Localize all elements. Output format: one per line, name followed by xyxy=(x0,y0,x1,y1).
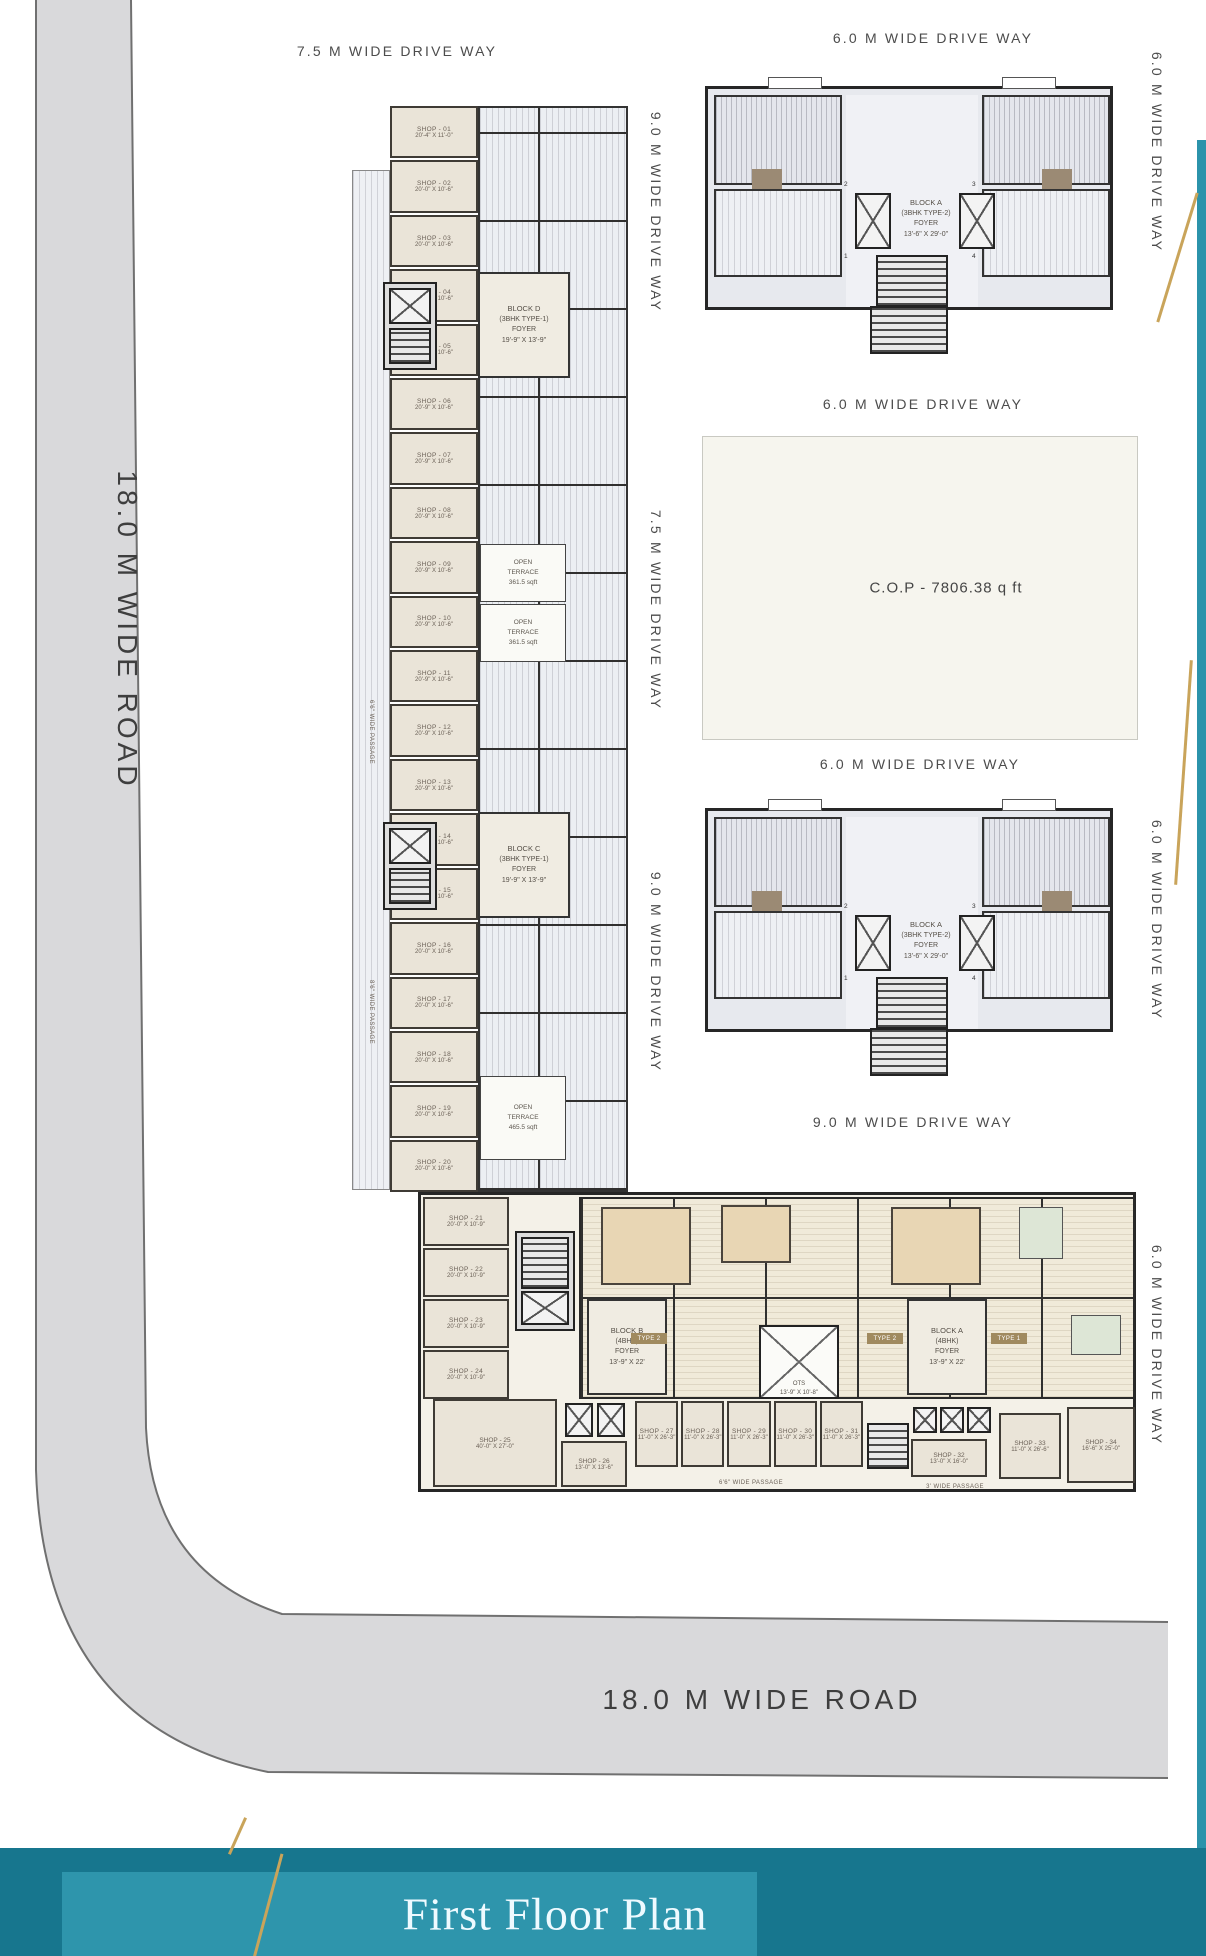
passage-label-left-2: 8'6" WIDE PASSAGE xyxy=(368,980,374,1044)
lift-icon xyxy=(913,1407,937,1433)
shop-size: 11'-0" X 26'-3" xyxy=(823,1435,860,1441)
shop-number: SHOP - 23 xyxy=(449,1317,483,1324)
open-terrace-3: OPENTERRACE465.5 sqft xyxy=(480,1076,566,1160)
toilet-room xyxy=(752,169,782,189)
shop-size: 11'-0" X 26'-3" xyxy=(684,1435,721,1441)
shop-size: 20'-9" X 10'-6" xyxy=(415,514,453,520)
lift-icon xyxy=(855,193,891,249)
block-a1-label: BLOCK A (3BHK TYPE-2) FOYER 13'-6" X 29'… xyxy=(894,181,958,257)
shop-number: SHOP - 12 xyxy=(417,724,451,731)
block-a-low-label: BLOCK A (4BHK) FOYER 13'-9" X 22' xyxy=(907,1299,987,1395)
block-d-name: BLOCK D xyxy=(480,304,568,313)
left-road-label: 18.0 M WIDE ROAD xyxy=(111,470,143,789)
stairs-icon xyxy=(876,255,948,307)
shop-size: 20'-9" X 10'-6" xyxy=(415,459,453,465)
driveway-label-inner-top: 9.0 M WIDE DRIVE WAY xyxy=(648,112,664,312)
shop-size: 20'-0" X 10'-9" xyxy=(447,1222,485,1228)
shop-unit: SHOP - 30 11'-0" X 26'-3" xyxy=(774,1401,817,1467)
shop-size: 20'-9" X 10'-6" xyxy=(415,731,453,737)
toilet-room xyxy=(752,891,782,911)
shop-number: SHOP - 24 xyxy=(449,1368,483,1375)
driveway-label-inner-mid: 7.5 M WIDE DRIVE WAY xyxy=(648,510,664,710)
shop-unit: SHOP - 18 20'-0" X 10'-6" xyxy=(390,1031,478,1083)
shop-number: SHOP - 10 xyxy=(417,615,451,622)
passage-label-left-1: 6'6" WIDE PASSAGE xyxy=(368,700,374,764)
unit-tag: 4 xyxy=(972,975,976,982)
shop-unit: SHOP - 28 11'-0" X 26'-3" xyxy=(681,1401,724,1467)
apartment-room xyxy=(982,911,1110,999)
lift-icon xyxy=(389,288,431,324)
bottom-building: SHOP - 21 20'-0" X 10'-9" SHOP - 22 20'-… xyxy=(418,1192,1136,1492)
lift-icon xyxy=(597,1403,625,1437)
shop-unit: SHOP - 19 20'-0" X 10'-6" xyxy=(390,1085,478,1137)
shop-number: SHOP - 31 xyxy=(824,1428,858,1435)
shop-size: 20'-9" X 10'-6" xyxy=(415,622,453,628)
block-c-type: (3BHK TYPE-1) xyxy=(480,856,568,865)
shop-unit: SHOP - 21 20'-0" X 10'-9" xyxy=(423,1197,509,1246)
shop-size: 20'-0" X 10'-9" xyxy=(447,1375,485,1381)
unit-tag: 1 xyxy=(844,253,848,260)
shop-number: SHOP - 30 xyxy=(778,1428,812,1435)
shop-unit: SHOP - 33 11'-0" X 26'-6" xyxy=(999,1413,1061,1479)
balcony xyxy=(1002,77,1056,89)
block-c-name: BLOCK C xyxy=(480,844,568,853)
shop-size: 20'-0" X 10'-6" xyxy=(415,1003,453,1009)
shop-unit: SHOP - 24 20'-0" X 10'-9" xyxy=(423,1350,509,1399)
block-d-label: BLOCK D (3BHK TYPE-1) FOYER 19'-9" X 13'… xyxy=(478,272,570,378)
shop-size: 20'-0" X 10'-6" xyxy=(415,1166,453,1172)
bottom-left-core xyxy=(515,1231,575,1331)
balcony xyxy=(1002,799,1056,811)
balcony xyxy=(768,77,822,89)
cop-label: C.O.P - 7806.38 q ft xyxy=(869,580,1022,597)
shop-size: 20'-4" X 11'-0" xyxy=(415,133,452,139)
shop-unit: SHOP - 08 20'-9" X 10'-6" xyxy=(390,487,478,539)
shop-size: 20'-0" X 10'-6" xyxy=(415,949,453,955)
shop-unit: SHOP - 34 16'-6" X 25'-0" xyxy=(1067,1407,1135,1483)
shop-number: SHOP - 06 xyxy=(417,398,451,405)
driveway-label-right-bottom: 6.0 M WIDE DRIVE WAY xyxy=(1149,1245,1165,1445)
shop-unit: SHOP - 25 40'-0" X 27'-0" xyxy=(433,1399,557,1487)
shop-unit: SHOP - 13 20'-9" X 10'-6" xyxy=(390,759,478,811)
shop-unit: SHOP - 02 20'-0" X 10'-6" xyxy=(390,160,478,212)
left-shop-column: SHOP - 01 20'-4" X 11'-0" SHOP - 02 20'-… xyxy=(390,106,478,1192)
toilet-room xyxy=(1042,891,1072,911)
block-c-core xyxy=(383,822,437,910)
block-b-label: BLOCK B (4BHK) FOYER 13'-9" X 22' xyxy=(587,1299,667,1395)
shop-number: SHOP - 21 xyxy=(449,1215,483,1222)
shop-unit: SHOP - 09 20'-9" X 10'-6" xyxy=(390,541,478,593)
ots-size: 13'-9" X 10'-8" xyxy=(780,1389,818,1397)
unit-tag: 1 xyxy=(844,975,848,982)
type-tag: TYPE 2 xyxy=(867,1333,903,1344)
shop-unit: SHOP - 01 20'-4" X 11'-0" xyxy=(390,106,478,158)
shop-unit: SHOP - 29 11'-0" X 26'-3" xyxy=(727,1401,770,1467)
block-c-foyer: FOYER xyxy=(480,866,568,875)
block-a2-label: BLOCK A (3BHK TYPE-2) FOYER 13'-6" X 29'… xyxy=(894,903,958,979)
shop-size: 20'-0" X 10'-9" xyxy=(447,1324,485,1330)
shop-unit: SHOP - 31 11'-0" X 26'-3" xyxy=(820,1401,863,1467)
open-terrace-1: OPENTERRACE361.5 sqft xyxy=(480,544,566,602)
shop-number: SHOP - 20 xyxy=(417,1159,451,1166)
driveway-label-below-block-a1: 6.0 M WIDE DRIVE WAY xyxy=(823,396,1023,412)
lift-icon xyxy=(389,828,431,864)
title-band: First Floor Plan xyxy=(0,1848,1206,1956)
balcony xyxy=(768,799,822,811)
stairs-icon xyxy=(389,868,431,904)
shop-size: 20'-0" X 10'-6" xyxy=(415,1058,453,1064)
floor-plan-page: 18.0 M WIDE ROAD 18.0 M WIDE ROAD 7.5 M … xyxy=(0,0,1206,1956)
unit-tag: 2 xyxy=(844,181,848,188)
shop-unit: SHOP - 12 20'-9" X 10'-6" xyxy=(390,704,478,756)
ots-shaft: OTS 13'-9" X 10'-8" xyxy=(759,1325,839,1399)
apartment-room xyxy=(721,1205,791,1263)
unit-tag: 3 xyxy=(972,181,976,188)
block-a1: BLOCK A (3BHK TYPE-2) FOYER 13'-6" X 29'… xyxy=(705,86,1113,310)
shop-unit: SHOP - 20 20'-0" X 10'-6" xyxy=(390,1140,478,1192)
lift-icon xyxy=(967,1407,991,1433)
unit-tag: 3 xyxy=(972,903,976,910)
shop-size: 20'-0" X 10'-6" xyxy=(415,187,453,193)
cop-area: C.O.P - 7806.38 q ft xyxy=(702,436,1138,740)
shop-number: SHOP - 28 xyxy=(686,1428,720,1435)
shop-size: 20'-9" X 10'-6" xyxy=(415,568,453,574)
stairs-icon xyxy=(867,1423,909,1469)
block-c-label: BLOCK C (3BHK TYPE-1) FOYER 19'-9" X 13'… xyxy=(478,812,570,918)
shop-number: SHOP - 08 xyxy=(417,507,451,514)
shop-number: SHOP - 18 xyxy=(417,1051,451,1058)
driveway-label-below-block-a2: 9.0 M WIDE DRIVE WAY xyxy=(813,1114,1013,1130)
shop-unit: SHOP - 07 20'-9" X 10'-6" xyxy=(390,432,478,484)
stairs-icon xyxy=(521,1237,569,1289)
shop-unit: SHOP - 10 20'-9" X 10'-6" xyxy=(390,596,478,648)
shop-size: 11'-0" X 26'-3" xyxy=(730,1435,767,1441)
driveway-label-above-block-a2: 6.0 M WIDE DRIVE WAY xyxy=(820,756,1020,772)
shop-unit: SHOP - 06 20'-9" X 10'-6" xyxy=(390,378,478,430)
shop-unit: SHOP - 03 20'-0" X 10'-6" xyxy=(390,215,478,267)
apartment-room xyxy=(714,911,842,999)
shop-number: SHOP - 09 xyxy=(417,561,451,568)
lift-icon xyxy=(855,915,891,971)
shop-unit: SHOP - 17 20'-0" X 10'-6" xyxy=(390,977,478,1029)
apartment-room xyxy=(714,189,842,277)
right-accent-strip xyxy=(1197,140,1206,1848)
passage-label-bottom-2: 3' WIDE PASSAGE xyxy=(926,1484,984,1490)
type-tag: TYPE 2 xyxy=(631,1333,667,1344)
shop-number: SHOP - 07 xyxy=(417,452,451,459)
passage-label-bottom-1: 6'6" WIDE PASSAGE xyxy=(719,1480,783,1486)
shop-number: SHOP - 16 xyxy=(417,942,451,949)
shop-unit: SHOP - 16 20'-0" X 10'-6" xyxy=(390,922,478,974)
lift-icon xyxy=(959,915,995,971)
driveway-label-inner-low: 9.0 M WIDE DRIVE WAY xyxy=(648,872,664,1072)
shop-number: SHOP - 01 xyxy=(417,126,451,133)
apartment-room xyxy=(1071,1315,1121,1355)
apartment-room xyxy=(601,1207,691,1285)
open-terrace-2: OPENTERRACE361.5 sqft xyxy=(480,604,566,662)
shop-unit: SHOP - 23 20'-0" X 10'-9" xyxy=(423,1299,509,1348)
shop-size: 20'-0" X 10'-6" xyxy=(415,242,453,248)
shop-unit: SHOP - 27 11'-0" X 26'-3" xyxy=(635,1401,678,1467)
apartment-room xyxy=(982,189,1110,277)
shop-size: 20'-0" X 10'-9" xyxy=(447,1273,485,1279)
block-d-type: (3BHK TYPE-1) xyxy=(480,316,568,325)
page-title: First Floor Plan xyxy=(403,1888,708,1941)
lift-icon xyxy=(959,193,995,249)
shop-number: SHOP - 19 xyxy=(417,1105,451,1112)
block-a1-stair-wing xyxy=(870,306,948,354)
unit-tag: 2 xyxy=(844,903,848,910)
shop-number: SHOP - 22 xyxy=(449,1266,483,1273)
apartment-room xyxy=(1019,1207,1063,1259)
lift-icon xyxy=(521,1291,569,1325)
lift-icon xyxy=(940,1407,964,1433)
block-d-foyer: FOYER xyxy=(480,326,568,335)
shop-number: SHOP - 27 xyxy=(640,1428,674,1435)
shop-number: SHOP - 03 xyxy=(417,235,451,242)
shop-size: 20'-0" X 10'-6" xyxy=(415,1112,453,1118)
bottom-shop-row: SHOP - 27 11'-0" X 26'-3" SHOP - 28 11'-… xyxy=(635,1401,863,1467)
shop-unit: SHOP - 26 13'-0" X 13'-6" xyxy=(561,1441,627,1487)
driveway-label-top-right: 6.0 M WIDE DRIVE WAY xyxy=(833,30,1033,46)
driveway-label-top: 7.5 M WIDE DRIVE WAY xyxy=(297,43,497,59)
block-a2-stair-wing xyxy=(870,1028,948,1076)
block-c-size: 19'-9" X 13'-9" xyxy=(480,877,568,886)
stairs-icon xyxy=(876,977,948,1029)
ots-label: OTS xyxy=(793,1380,805,1388)
bottom-road-label: 18.0 M WIDE ROAD xyxy=(602,1684,921,1716)
type-tag: TYPE 1 xyxy=(991,1333,1027,1344)
bottom-left-shop-column: SHOP - 21 20'-0" X 10'-9" SHOP - 22 20'-… xyxy=(423,1197,509,1399)
shop-number: SHOP - 11 xyxy=(417,670,451,677)
unit-tag: 4 xyxy=(972,253,976,260)
shop-size: 11'-0" X 26'-3" xyxy=(776,1435,813,1441)
driveway-label-right-mid: 6.0 M WIDE DRIVE WAY xyxy=(1149,820,1165,1020)
shop-size: 20'-9" X 10'-6" xyxy=(415,786,453,792)
shop-number: SHOP - 13 xyxy=(417,779,451,786)
block-d-size: 19'-9" X 13'-9" xyxy=(480,337,568,346)
stairs-icon xyxy=(389,328,431,364)
shop-number: SHOP - 17 xyxy=(417,996,451,1003)
shop-size: 11'-0" X 26'-3" xyxy=(638,1435,675,1441)
driveway-label-right-top: 6.0 M WIDE DRIVE WAY xyxy=(1149,52,1165,252)
lift-icon xyxy=(565,1403,593,1437)
block-d-core xyxy=(383,282,437,370)
shop-size: 20'-9" X 10'-6" xyxy=(415,405,453,411)
apartment-room xyxy=(891,1207,981,1285)
shop-unit: SHOP - 11 20'-9" X 10'-6" xyxy=(390,650,478,702)
shop-unit: SHOP - 22 20'-0" X 10'-9" xyxy=(423,1248,509,1297)
shop-number: SHOP - 02 xyxy=(417,180,451,187)
block-a2: BLOCK A (3BHK TYPE-2) FOYER 13'-6" X 29'… xyxy=(705,808,1113,1032)
shop-unit: SHOP - 32 13'-0" X 16'-0" xyxy=(911,1439,987,1477)
toilet-room xyxy=(1042,169,1072,189)
shop-size: 20'-9" X 10'-6" xyxy=(415,677,453,683)
shop-number: SHOP - 29 xyxy=(732,1428,766,1435)
